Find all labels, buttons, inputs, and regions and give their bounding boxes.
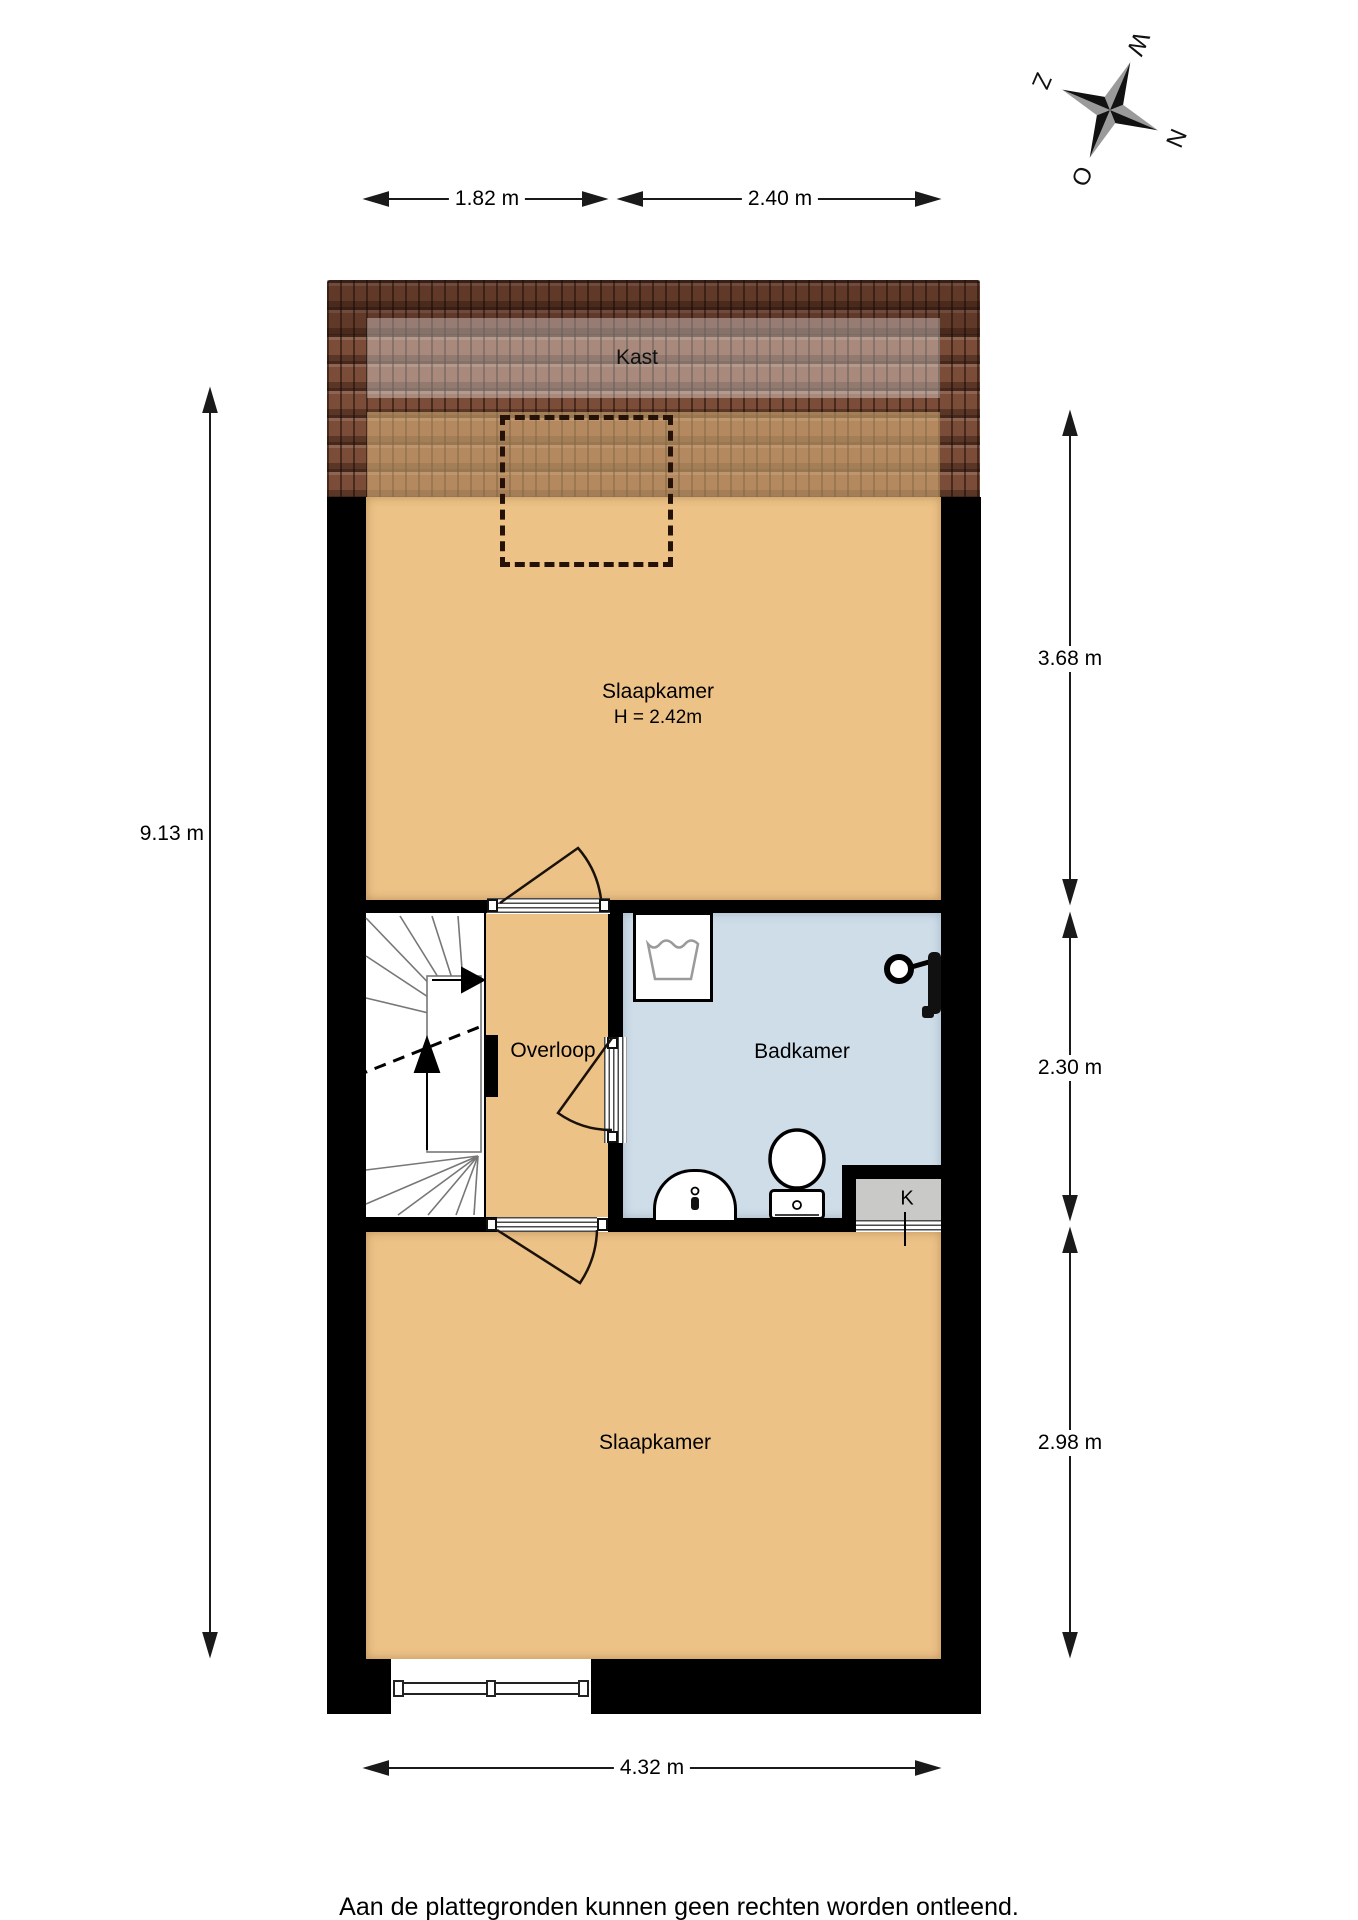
bedroom-top-label: Slaapkamer xyxy=(602,680,714,704)
door-jamb xyxy=(487,899,498,912)
compass-label-n: N xyxy=(1160,125,1192,152)
door-sill-bedroom-bottom xyxy=(497,1217,597,1232)
window-frame-cap xyxy=(393,1680,404,1697)
window-pane xyxy=(496,1682,578,1695)
overloop-floor xyxy=(486,913,608,1217)
dim-right-bottom: 2.98 m xyxy=(1032,1430,1108,1456)
bedroom-top-ceiling-height: H = 2.42m xyxy=(614,707,702,729)
k-closet-label: K xyxy=(900,1188,913,1211)
stair-direction-arrow xyxy=(415,968,484,1150)
disclaimer-text: Aan de plattegronden kunnen geen rechten… xyxy=(0,1893,1358,1920)
kast-label: Kast xyxy=(616,346,658,370)
toilet-cistern xyxy=(769,1189,825,1220)
window-pane xyxy=(404,1682,486,1695)
dim-top-left: 1.82 m xyxy=(449,186,525,212)
dim-left: 9.13 m xyxy=(136,821,208,847)
compass-rose: N O Z W xyxy=(997,0,1221,218)
door-sill-bedroom-top xyxy=(487,898,610,914)
door-jamb xyxy=(607,1131,618,1143)
dim-bottom: 4.32 m xyxy=(614,1755,690,1781)
wall-above-k-closet xyxy=(842,1165,941,1179)
wall-below-stairs xyxy=(366,1217,497,1232)
compass-label-o: O xyxy=(1065,162,1097,190)
door-jamb xyxy=(597,1218,608,1231)
compass-label-z: Z xyxy=(1026,69,1057,93)
compass-label-w: W xyxy=(1121,28,1155,60)
door-jamb xyxy=(486,1218,497,1231)
door-jamb xyxy=(599,899,610,912)
wall-stub-overloop xyxy=(484,1035,498,1097)
wall-left-of-k-closet xyxy=(842,1165,856,1232)
overloop-label: Overloop xyxy=(510,1039,595,1063)
window-frame-cap xyxy=(578,1680,589,1697)
skylight-dashed-outline xyxy=(500,415,673,567)
door-jamb xyxy=(607,1037,618,1049)
door-sill-badkamer xyxy=(604,1037,627,1143)
wall-right xyxy=(941,497,981,1714)
bedroom-bottom-label: Slaapkamer xyxy=(599,1431,711,1455)
badkamer-label: Badkamer xyxy=(754,1040,850,1064)
wall-left xyxy=(327,497,366,1714)
dim-right-middle: 2.30 m xyxy=(1032,1055,1108,1081)
window-mullion xyxy=(486,1680,496,1697)
wall-bath-bottom xyxy=(608,1218,842,1232)
floorplan-page: Kast K xyxy=(0,0,1358,1920)
wall-mid-left-segment xyxy=(327,900,487,913)
dim-top-right: 2.40 m xyxy=(742,186,818,212)
dim-right-top: 3.68 m xyxy=(1032,646,1108,672)
washing-machine xyxy=(633,912,713,1002)
stairs xyxy=(366,916,481,1215)
k-closet xyxy=(856,1179,941,1220)
k-closet-sill xyxy=(856,1220,941,1232)
wall-overloop-bath-upper xyxy=(608,913,623,1037)
stair-cut-line xyxy=(356,1026,482,1076)
